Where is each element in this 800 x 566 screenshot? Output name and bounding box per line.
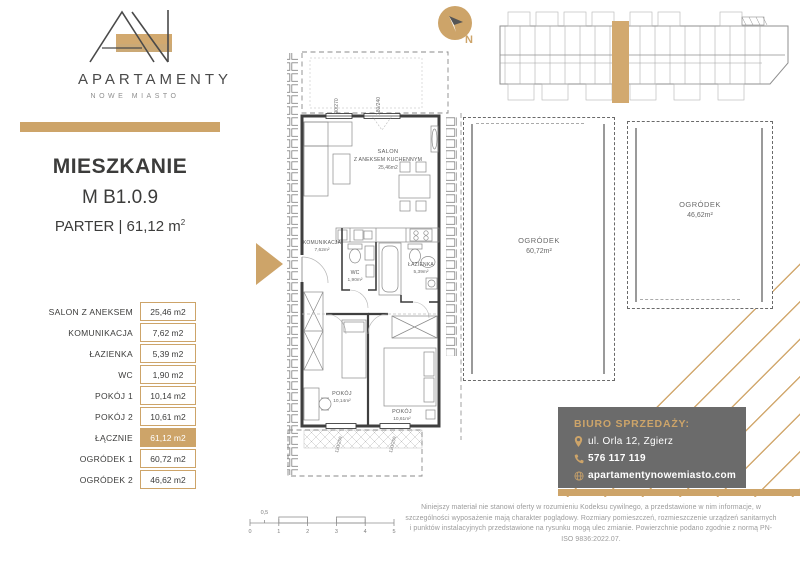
bathroom-label: ŁAZIENKA 5,39m² bbox=[408, 262, 434, 275]
bathroom-door-arc bbox=[413, 302, 429, 318]
table-row: POKÓJ 210,61 m2 bbox=[28, 406, 196, 427]
garden-name: OGRÓDEK bbox=[464, 236, 614, 245]
room-area: 10,61m² bbox=[393, 416, 411, 422]
area-superscript: 2 bbox=[181, 218, 185, 227]
room-label: ŁĄCZNIE bbox=[28, 433, 140, 443]
garden-label: OGRÓDEK 60,72m² bbox=[464, 236, 614, 255]
table-row: OGRÓDEK 246,62 m2 bbox=[28, 469, 196, 490]
garden-1: OGRÓDEK 60,72m² bbox=[463, 117, 615, 381]
room-value: 60,72 m2 bbox=[140, 449, 196, 468]
room-label: ŁAZIENKA bbox=[28, 349, 140, 359]
bedroom-walls bbox=[326, 314, 388, 426]
sales-office-heading: BIURO SPRZEDAŻY: bbox=[574, 418, 746, 430]
komunikacja-label: KOMUNIKACJA 7,62m² bbox=[303, 240, 342, 253]
room-value: 25,46 m2 bbox=[140, 302, 196, 321]
compass: N bbox=[435, 3, 481, 54]
bathroom-fixtures bbox=[379, 243, 437, 295]
room-value: 10,61 m2 bbox=[140, 407, 196, 426]
scale-tick-label: 3 bbox=[335, 529, 338, 535]
brand-name: APARTAMENTY bbox=[78, 71, 192, 88]
room-value-total: 61,12 m2 bbox=[140, 428, 196, 447]
title-mieszkanie: MIESZKANIE bbox=[15, 155, 225, 179]
garden-2: OGRÓDEK 46,62m² bbox=[627, 121, 773, 309]
compass-north-label: N bbox=[465, 34, 473, 46]
bedroom2-label: POKÓJ 10,61m² bbox=[392, 408, 412, 422]
corridor-outline bbox=[302, 52, 448, 113]
gold-divider-bar bbox=[20, 122, 220, 132]
room-label: KOMUNIKACJA bbox=[28, 328, 140, 338]
brand-logo: APARTAMENTY NOWE MIASTO bbox=[78, 8, 192, 100]
room-name: Z ANEKSEM KUCHENNYM bbox=[354, 157, 422, 163]
room-name: SALON bbox=[378, 149, 399, 155]
room-value: 7,62 m2 bbox=[140, 323, 196, 342]
room-label: POKÓJ 2 bbox=[28, 412, 140, 422]
brand-monogram-icon bbox=[78, 8, 192, 66]
room-name: POKÓJ bbox=[392, 408, 412, 415]
apartment-title: MIESZKANIE M B1.0.9 PARTER | 61,12 m2 bbox=[15, 155, 225, 235]
room-label: OGRÓDEK 2 bbox=[28, 475, 140, 485]
phone-number[interactable]: 576 117 119 bbox=[588, 453, 646, 464]
apartment-number: M B1.0.9 bbox=[15, 187, 225, 209]
entrance-door-arc bbox=[302, 257, 328, 283]
brochure-page: APARTAMENTY NOWE MIASTO MIESZKANIE M B1.… bbox=[0, 0, 800, 566]
website-row[interactable]: apartamentynowemiasto.com bbox=[574, 470, 746, 481]
room-area: 25,46m2 bbox=[378, 165, 398, 171]
floor-plan: 90/270 180/240 SALON Z ANEKSEM KUCHENNYM… bbox=[280, 50, 466, 484]
room-area: 5,39m² bbox=[414, 269, 429, 275]
table-row: OGRÓDEK 160,72 m2 bbox=[28, 448, 196, 469]
garden-name: OGRÓDEK bbox=[628, 200, 772, 209]
unit-location-highlight bbox=[612, 21, 629, 103]
room-label: WC bbox=[28, 370, 140, 380]
room-area: 7,62m² bbox=[315, 247, 330, 253]
window-dim-label: 90/270 bbox=[334, 98, 340, 114]
bathroom-walls bbox=[401, 295, 439, 302]
room-area: 1,90m² bbox=[348, 277, 363, 283]
stove bbox=[410, 229, 432, 241]
sales-office-box: BIURO SPRZEDAŻY: ul. Orla 12, Zgierz 576… bbox=[558, 407, 746, 488]
salon-label: SALON Z ANEKSEM KUCHENNYM 25,46m2 bbox=[354, 149, 422, 171]
table-row: WC1,90 m2 bbox=[28, 364, 196, 385]
phone-row[interactable]: 576 117 119 bbox=[574, 453, 746, 464]
room-label: SALON Z ANEKSEM bbox=[28, 307, 140, 317]
left-boundary-wall bbox=[287, 53, 298, 475]
room-name: KOMUNIKACJA bbox=[303, 240, 342, 246]
scale-tick-label: 2 bbox=[306, 529, 309, 535]
website-url[interactable]: apartamentynowemiasto.com bbox=[588, 470, 736, 481]
scale-half-label: 0,5 bbox=[261, 510, 269, 516]
garden-inner-dashed bbox=[476, 123, 584, 124]
room-area-table: SALON Z ANEKSEM25,46 m2 KOMUNIKACJA7,62 … bbox=[28, 301, 196, 490]
floor-and-area: PARTER | 61,12 m2 bbox=[15, 218, 225, 235]
scale-tick-label: 1 bbox=[277, 529, 280, 535]
wardrobes bbox=[304, 292, 437, 370]
scale-tick-label: 0 bbox=[248, 529, 251, 535]
scale-tick-label: 4 bbox=[364, 529, 367, 535]
room-value: 1,90 m2 bbox=[140, 365, 196, 384]
table-row-total: ŁĄCZNIE61,12 m2 bbox=[28, 427, 196, 448]
phone-icon bbox=[574, 454, 588, 464]
window-dim-label: 180/240 bbox=[376, 97, 382, 115]
terrace bbox=[288, 430, 422, 476]
globe-icon bbox=[574, 471, 588, 481]
bedroom1-label: POKÓJ 10,14m² bbox=[332, 390, 352, 404]
gold-footer-bar bbox=[558, 489, 800, 496]
garden-inner-dashed bbox=[640, 299, 740, 300]
room-value: 10,14 m2 bbox=[140, 386, 196, 405]
entrance-pointer-icon bbox=[256, 243, 283, 285]
garden-area: 46,62m² bbox=[628, 212, 772, 219]
brand-subtitle: NOWE MIASTO bbox=[78, 93, 192, 100]
right-boundary-wall bbox=[446, 116, 457, 356]
location-pin-icon bbox=[574, 436, 588, 447]
building-site-plan bbox=[490, 5, 792, 105]
room-name: POKÓJ bbox=[332, 390, 352, 397]
compass-icon: N bbox=[435, 3, 481, 49]
salon-furniture bbox=[304, 122, 438, 211]
wc-door-arc bbox=[350, 290, 368, 308]
scale-bar: 0,5 0 1 2 3 4 5 bbox=[246, 504, 400, 538]
scale-tick-label: 5 bbox=[392, 529, 395, 535]
table-row: ŁAZIENKA5,39 m2 bbox=[28, 343, 196, 364]
kitchen-counter bbox=[336, 228, 439, 242]
table-row: POKÓJ 110,14 m2 bbox=[28, 385, 196, 406]
room-area: 10,14m² bbox=[333, 398, 351, 404]
room-value: 5,39 m2 bbox=[140, 344, 196, 363]
table-row: KOMUNIKACJA7,62 m2 bbox=[28, 322, 196, 343]
room-value: 46,62 m2 bbox=[140, 470, 196, 489]
room-label: POKÓJ 1 bbox=[28, 391, 140, 401]
address-text: ul. Orla 12, Zgierz bbox=[588, 436, 673, 447]
garden-label: OGRÓDEK 46,62m² bbox=[628, 200, 772, 219]
room-name: ŁAZIENKA bbox=[408, 262, 434, 268]
address-row: ul. Orla 12, Zgierz bbox=[574, 436, 746, 447]
room-name: WC bbox=[351, 270, 360, 276]
garden-area: 60,72m² bbox=[464, 248, 614, 255]
wc-label: WC 1,90m² bbox=[348, 270, 363, 283]
bedroom2-door-arc bbox=[368, 314, 388, 334]
room-label: OGRÓDEK 1 bbox=[28, 454, 140, 464]
floor-area-text: PARTER | 61,12 m bbox=[55, 218, 181, 235]
bedroom1-door-arc bbox=[326, 314, 346, 334]
table-row: SALON Z ANEKSEM25,46 m2 bbox=[28, 301, 196, 322]
legal-disclaimer: Niniejszy materiał nie stanowi oferty w … bbox=[405, 503, 777, 546]
